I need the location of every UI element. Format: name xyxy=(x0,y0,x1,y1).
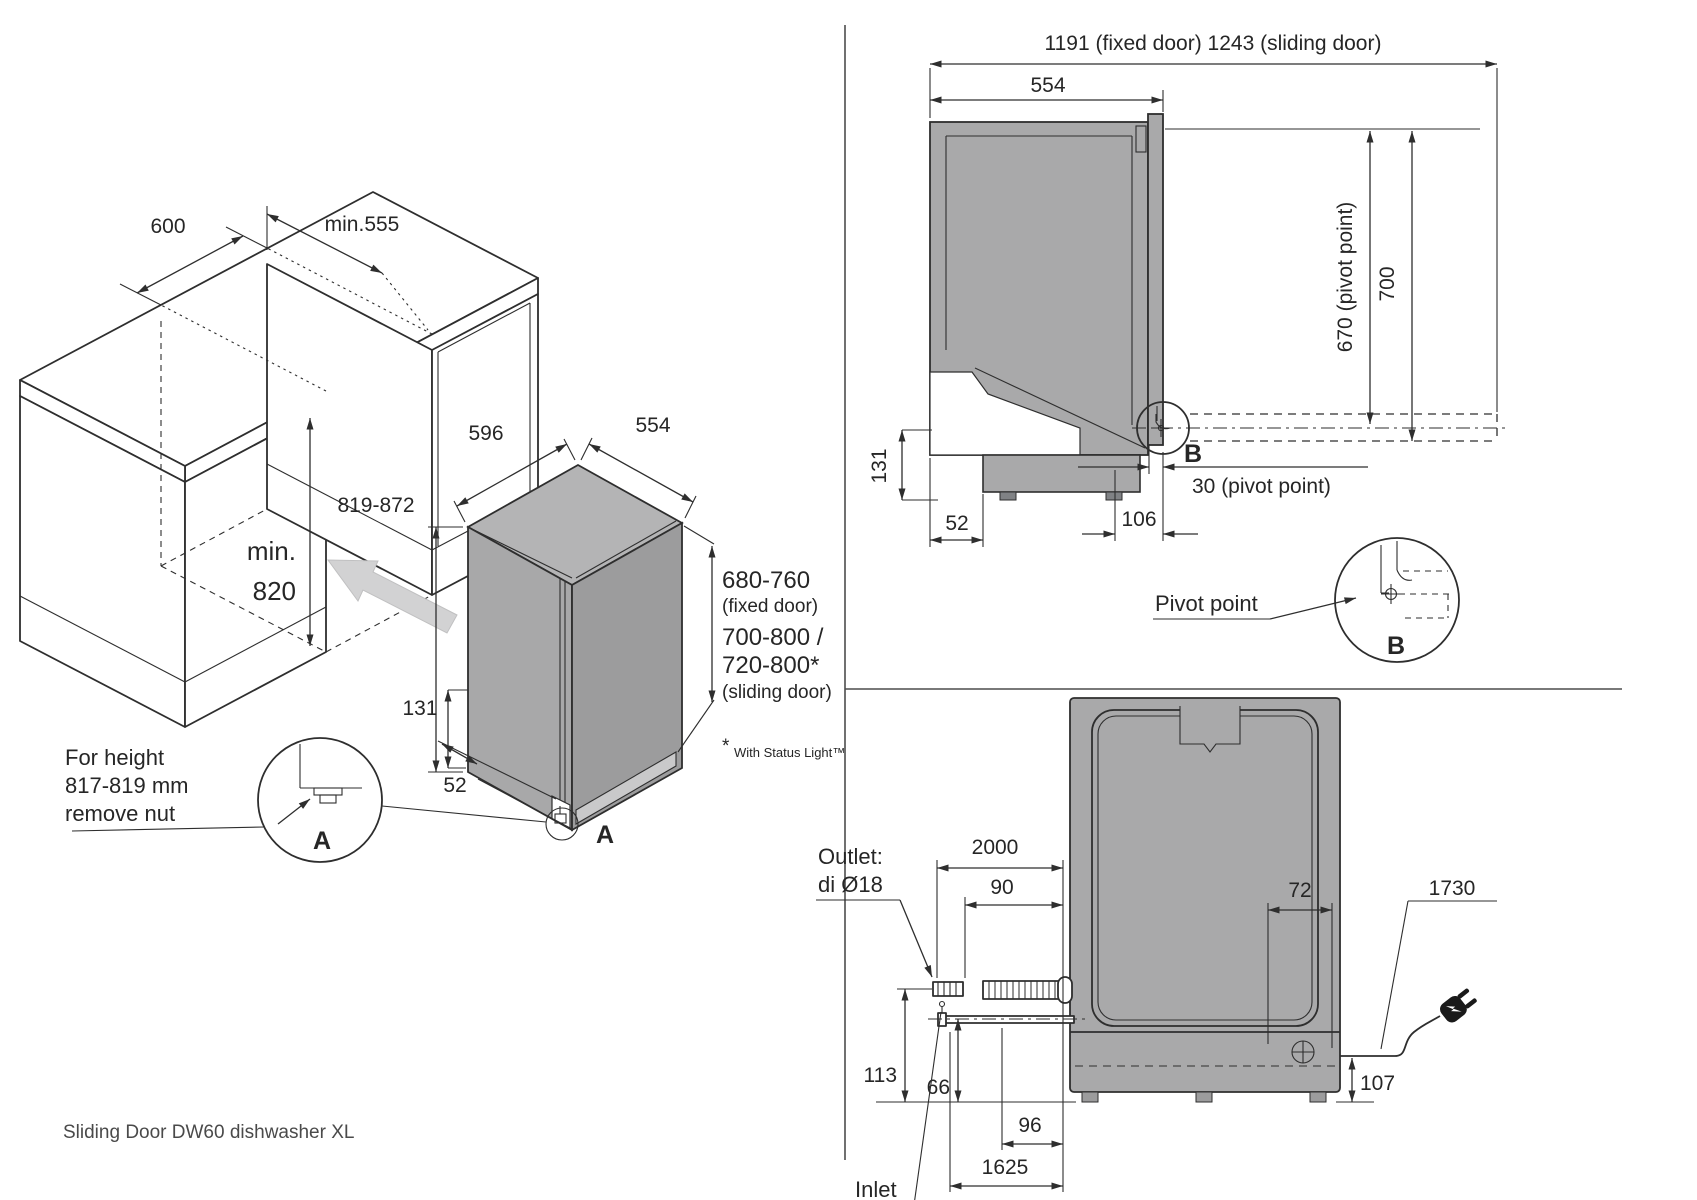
dim-label-body-depth: 554 xyxy=(1030,74,1065,97)
machine-foot xyxy=(1082,1092,1098,1102)
dim-outlet-protrusion: 90 xyxy=(965,876,1063,978)
dim-label-outlet-hose-length: 2000 xyxy=(972,836,1019,859)
detail-a-ref-label: A xyxy=(596,821,614,849)
dim-body-depth: 554 xyxy=(930,74,1163,112)
label-sliding-door-range-1: 700-800 / xyxy=(722,624,824,651)
rear-view: 2000 90 72 1730 113 66 xyxy=(816,698,1497,1200)
dim-label-inlet-protrusion: 96 xyxy=(1018,1114,1041,1137)
machine-foot xyxy=(1106,492,1122,500)
dim-label-unit-depth: 554 xyxy=(635,414,670,437)
dim-label-door-open-height: 700 xyxy=(1376,266,1399,301)
dim-outlet-height: 113 xyxy=(864,989,932,1102)
dim-side-toe-depth: 52 xyxy=(930,458,983,547)
label-sliding-door-range-2: 720-800* xyxy=(722,652,819,679)
dim-label-cord-offset: 72 xyxy=(1288,879,1311,902)
detail-b-ref-label: B xyxy=(1184,440,1202,468)
dim-label-cabinet-width: 600 xyxy=(150,215,185,238)
dim-label-inlet-hose-length: 1625 xyxy=(982,1156,1029,1179)
dim-label-overall-depth: 1191 (fixed door) 1243 (sliding door) xyxy=(1045,32,1382,55)
pivot-crosshair-icon xyxy=(1381,584,1401,604)
dim-label-pivot-to-front: 106 xyxy=(1121,508,1156,531)
side-view: 1191 (fixed door) 1243 (sliding door) 55… xyxy=(868,32,1508,662)
dishwasher-installation-drawing: 600 min.555 min. 820 xyxy=(0,0,1697,1200)
dim-label-niche-height-2: 820 xyxy=(253,576,296,606)
dim-side-plinth-height: 131 xyxy=(868,430,938,500)
dim-label-outlet-height: 113 xyxy=(864,1064,897,1087)
power-cord xyxy=(1340,986,1479,1056)
detail-b-circle-label: B xyxy=(1387,632,1405,660)
dim-label-niche-height-1: min. xyxy=(247,536,296,566)
detail-a-circle-label: A xyxy=(313,827,331,855)
dim-label-outlet-protrusion: 90 xyxy=(990,876,1013,899)
dim-inlet-hose-length: 1625 xyxy=(950,1032,1063,1192)
height-note-line2: 817-819 mm xyxy=(65,773,189,798)
drawing-canvas: 600 min.555 min. 820 xyxy=(0,0,1697,1200)
dim-cord-height: 107 xyxy=(1352,1058,1395,1102)
footnote: * With Status Light™ xyxy=(722,736,845,760)
machine-foot xyxy=(1310,1092,1326,1102)
power-plug-icon xyxy=(1437,986,1479,1026)
kitchen-cabinet xyxy=(20,192,538,727)
outlet-hose xyxy=(933,977,1072,1003)
side-view-machine xyxy=(930,114,1163,500)
label-fixed-door-range: 680-760 xyxy=(722,567,810,594)
inlet-pipe xyxy=(928,1002,1086,1027)
dim-label-pivot-offset: 30 (pivot point) xyxy=(1192,475,1331,498)
outlet-label-line2: di Ø18 xyxy=(818,872,883,897)
dim-label-cord-height: 107 xyxy=(1360,1072,1395,1095)
outlet-label: Outlet: di Ø18 xyxy=(816,844,932,977)
height-note-line1: For height xyxy=(65,745,164,770)
outlet-label-line1: Outlet: xyxy=(818,844,883,869)
inlet-label-text: Inlet xyxy=(855,1177,897,1200)
dim-label-toe-depth: 52 xyxy=(443,774,466,797)
dim-cord-length: 1730 xyxy=(1381,877,1497,1049)
dim-pivot-height: 670 (pivot point) xyxy=(1334,131,1370,424)
footnote-text: With Status Light™ xyxy=(734,745,845,760)
footnote-asterisk: * xyxy=(722,736,730,757)
dim-inlet-height: 66 xyxy=(927,1019,958,1102)
drawing-caption: Sliding Door DW60 dishwasher XL xyxy=(63,1122,354,1143)
inlet-label: Inlet xyxy=(853,1012,941,1200)
label-fixed-door: (fixed door) xyxy=(722,596,818,617)
dim-label-unit-height: 819-872 xyxy=(337,494,414,517)
side-view-door xyxy=(1148,114,1163,445)
dishwasher-unit xyxy=(468,465,682,840)
dim-door-open-height: 700 xyxy=(1376,131,1412,441)
detail-b-callout: B Pivot point xyxy=(1153,538,1459,662)
machine-foot xyxy=(1196,1092,1212,1102)
dim-label-niche-depth: min.555 xyxy=(325,213,400,236)
dim-label-plinth-height: 131 xyxy=(402,697,437,720)
dim-door-height: 680-760 (fixed door) 700-800 / 720-800* … xyxy=(678,526,832,752)
height-note-line3: remove nut xyxy=(65,801,175,826)
dim-label-unit-width: 596 xyxy=(468,422,503,445)
dim-label-cord-length: 1730 xyxy=(1429,877,1476,900)
installation-view: 600 min.555 min. 820 xyxy=(20,192,845,1143)
pivot-point-label: Pivot point xyxy=(1155,591,1258,616)
dim-label-pivot-height: 670 (pivot point) xyxy=(1334,202,1357,353)
dim-plinth-height: 131 xyxy=(402,690,468,768)
dim-label-side-plinth-height: 131 xyxy=(868,448,891,483)
dim-label-side-toe-depth: 52 xyxy=(945,512,968,535)
machine-foot xyxy=(1000,492,1016,500)
label-sliding-door: (sliding door) xyxy=(722,682,832,703)
cable-gland-icon xyxy=(1292,1041,1314,1063)
dim-inlet-protrusion: 96 xyxy=(1002,1028,1063,1150)
